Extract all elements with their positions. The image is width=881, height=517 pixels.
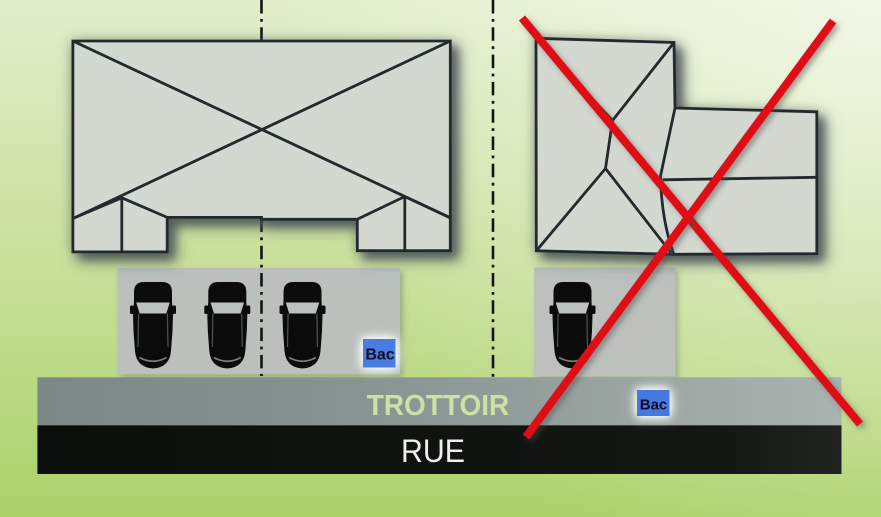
svg-text:Bac: Bac bbox=[365, 347, 394, 364]
svg-text:TROTTOIR: TROTTOIR bbox=[367, 390, 510, 422]
svg-text:Bac: Bac bbox=[640, 397, 668, 414]
svg-text:RUE: RUE bbox=[401, 433, 465, 469]
